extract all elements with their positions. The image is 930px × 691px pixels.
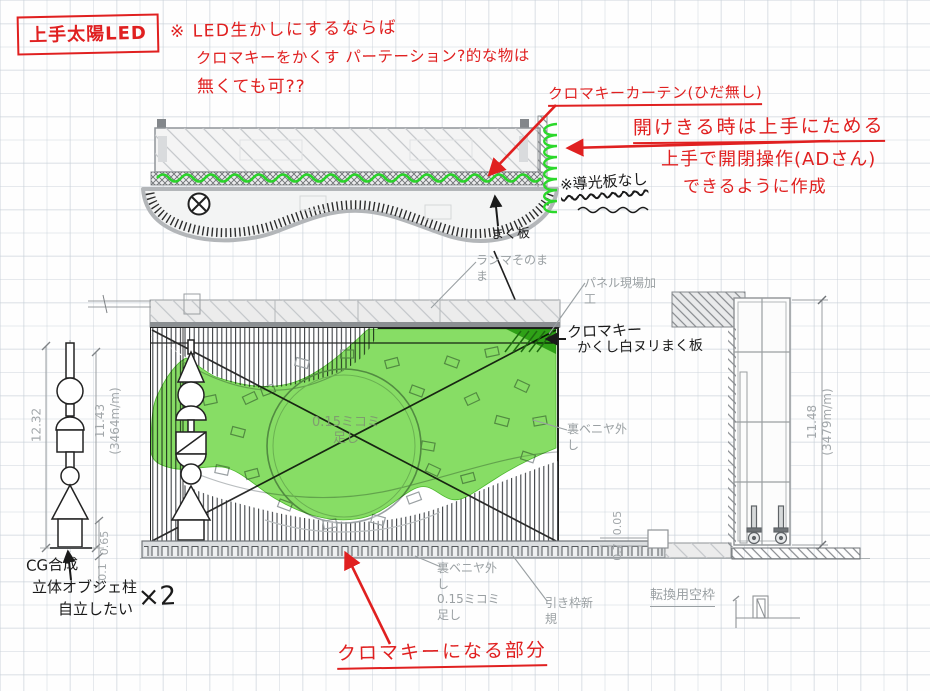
led-note-line2: クロマキーをかくす パーテーション?的な物は — [196, 47, 530, 69]
dim-right-height: 11.48(3479m/m) — [805, 388, 835, 455]
back-veneer-bottom-label: 裏ベニヤ外 し 0.15ミコミ 足し — [437, 561, 500, 623]
maku-board-label: まく板 — [491, 226, 531, 243]
title-box: 上手太陽LED — [17, 14, 160, 56]
dim-floor-d2: 0.7 — [611, 543, 625, 561]
spare-frame-label: 転換用空枠 — [650, 588, 715, 607]
dim-floor-d1: 0.05 — [611, 511, 625, 536]
ranma-label: ランマそのま ま — [476, 253, 548, 284]
circled-x-symbol — [189, 194, 210, 215]
operate-note-line2: できるように作成 — [683, 177, 827, 197]
floor-hatch-strip — [732, 548, 860, 559]
cg-note-quantity: ×2 — [137, 581, 177, 614]
cg-note-line1: CG合成 — [26, 555, 79, 575]
dim-base-h2: 0.1 — [96, 563, 110, 581]
chroma-hide-line2: かくし白ヌリまく板 — [577, 338, 703, 357]
led-note-line3: 無くても可?? — [197, 77, 306, 97]
chroma-part-arrow — [346, 554, 390, 644]
cg-note-line3: 自立したい — [58, 600, 133, 618]
stage-set-drawing-page: 上手太陽LED ※ LED生かしにするならば クロマキーをかくす パーテーション… — [0, 0, 930, 691]
back-veneer-right-label: 裏ベニヤ外 し — [567, 422, 627, 453]
spare-frame-detail — [733, 596, 800, 628]
dim-base-h1: 0.65 — [98, 531, 112, 556]
chroma-curtain-label: クロマキーカーテン(ひだ無し) — [548, 83, 762, 107]
frame-edge-hatch — [728, 328, 736, 547]
object-column-left — [40, 340, 104, 590]
chroma-part-label: クロマキーになる部分 — [337, 639, 547, 669]
dim-inner-height: 11.43(3464m/m) — [93, 387, 123, 454]
wavy-underline — [578, 208, 648, 213]
cg-note-line2: 立体オブジェ柱 — [32, 578, 137, 596]
led-note-line1: ※ LED生かしにするならば — [170, 18, 397, 42]
pull-frame-label: 引き枠新 規 — [545, 596, 593, 627]
plan-view — [143, 116, 557, 241]
dim-outer-height: 12.32 — [30, 408, 45, 442]
gather-note: 開けきる時は上手にためる — [633, 115, 885, 144]
operate-note-line1: 上手で開閉操作(ADさん) — [661, 149, 876, 171]
panel-site-label: パネル現場加 工 — [584, 276, 656, 307]
center-add-label: 0.15ミコミ 足し — [306, 415, 386, 446]
